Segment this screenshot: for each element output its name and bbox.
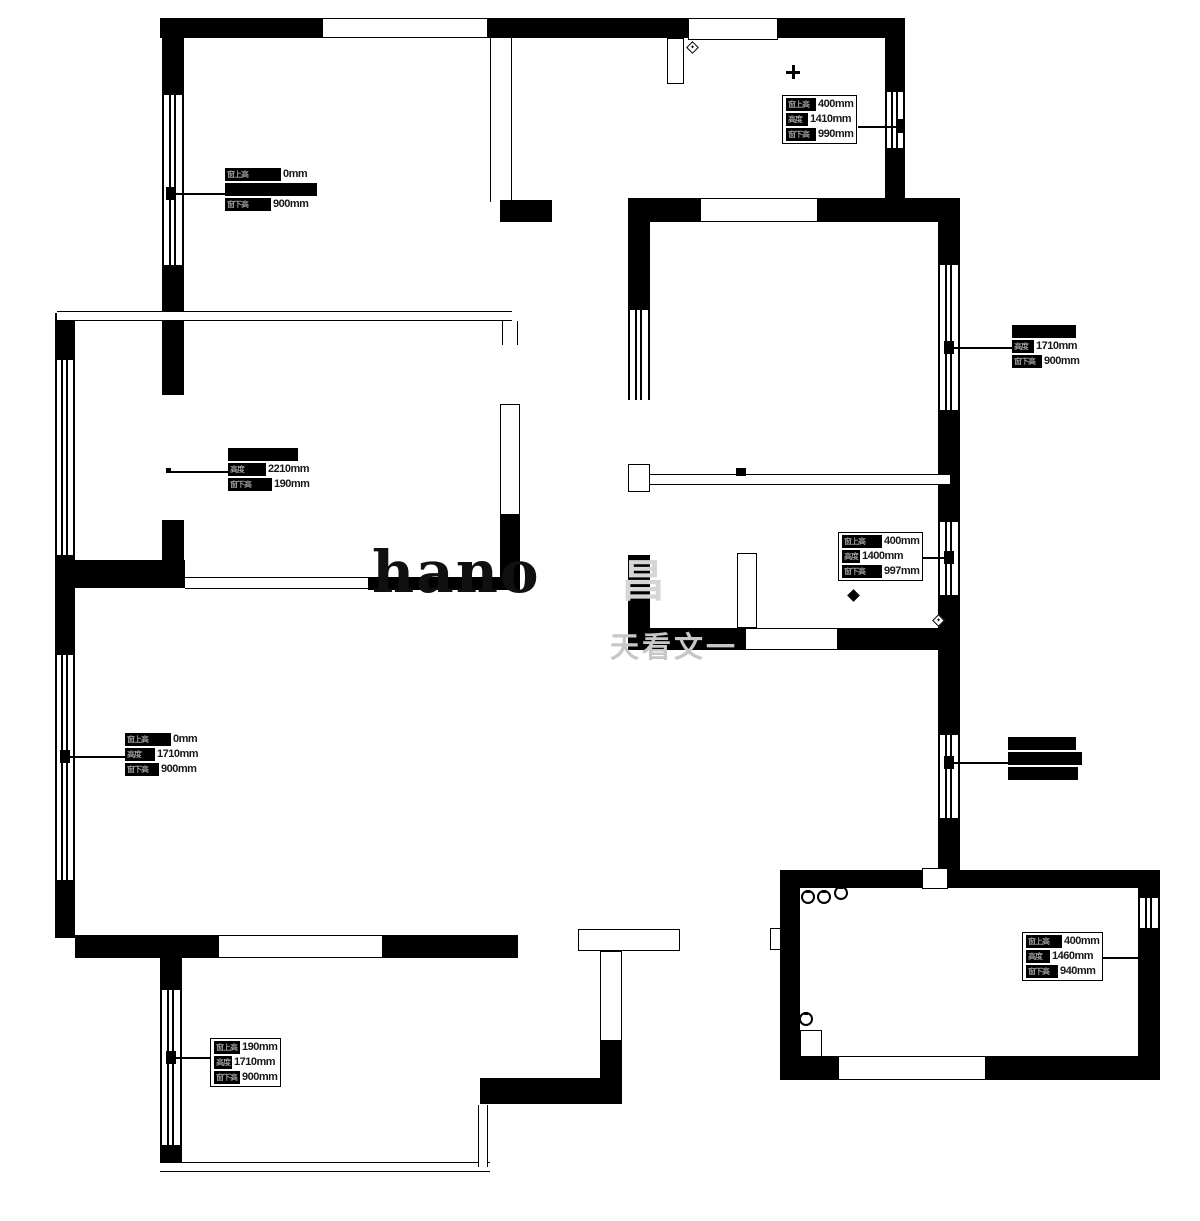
leader-line <box>176 1057 212 1059</box>
dim-row: 窗下高940mm <box>1026 965 1099 978</box>
dim-row: 高度2210mm <box>228 463 309 476</box>
wall-segment <box>778 18 905 38</box>
thin-wall <box>185 577 368 589</box>
dim-label-bottom-right[interactable]: 窗上高400mm 高度1460mm 窗下高940mm <box>1022 932 1103 981</box>
wall-segment <box>885 38 905 92</box>
window-striped <box>628 310 650 400</box>
dim-label-top-left[interactable]: 窗上高0mm 窗下高900mm <box>225 168 317 211</box>
dim-row: 窗上高400mm <box>842 535 919 548</box>
dim-row: 高度1410mm <box>786 113 853 126</box>
wall-unfilled <box>628 464 650 492</box>
wall-unfilled <box>600 951 622 1041</box>
window-striped <box>160 990 182 1145</box>
fixture-circle-icon <box>834 886 848 900</box>
wall-segment <box>628 198 700 222</box>
wall-unfilled <box>578 929 680 951</box>
dim-value: 0mm <box>171 733 197 746</box>
wall-segment <box>500 514 520 590</box>
dim-chip-blackout <box>1008 752 1082 765</box>
dim-value: 900mm <box>1042 355 1079 368</box>
wall-tick <box>166 187 176 200</box>
dim-value: 400mm <box>882 535 919 548</box>
dim-label-top-right[interactable]: 窗上高400mm 高度1410mm 窗下高990mm <box>782 95 857 144</box>
window-striped <box>55 360 75 555</box>
wall-segment <box>55 560 185 588</box>
wall-segment <box>780 870 800 1075</box>
dim-chip: 窗上高 <box>225 168 281 181</box>
dim-row: 窗上高400mm <box>1026 935 1099 948</box>
dim-row <box>1008 767 1082 780</box>
dim-label-mid-left[interactable]: 高度2210mm 窗下高190mm <box>228 448 309 491</box>
dim-value: 900mm <box>159 763 196 776</box>
dim-row: 窗上高0mm <box>225 168 317 181</box>
dim-value: 400mm <box>1062 935 1099 948</box>
dim-value: 400mm <box>816 98 853 111</box>
dim-row <box>228 448 309 461</box>
wall-tick <box>60 750 70 763</box>
dim-value: 0mm <box>281 168 307 181</box>
dim-value: 1710mm <box>155 748 198 761</box>
wall-segment <box>600 1040 622 1080</box>
wall-tick <box>736 468 746 476</box>
wall-segment <box>368 577 518 590</box>
wall-unfilled <box>770 928 781 950</box>
leader-line <box>176 193 226 195</box>
dim-value: 997mm <box>882 565 919 578</box>
dim-chip: 窗下高 <box>125 763 159 776</box>
wall-segment <box>938 222 960 265</box>
window-striped <box>162 95 184 265</box>
thin-wall <box>478 1105 488 1167</box>
wall-segment <box>628 222 650 310</box>
dim-row: 高度1710mm <box>214 1056 277 1069</box>
wall-tick <box>944 551 954 564</box>
leader-line <box>171 471 228 473</box>
dim-chip: 窗上高 <box>842 535 882 548</box>
dim-row: 高度1710mm <box>1012 340 1079 353</box>
dim-chip: 窗下高 <box>842 565 882 578</box>
window-opening <box>688 18 778 40</box>
dim-chip: 高度 <box>214 1056 232 1069</box>
dim-row: 窗下高900mm <box>125 763 198 776</box>
thin-wall <box>650 474 950 485</box>
dim-chip-blackout <box>228 448 298 461</box>
dim-value: 1710mm <box>232 1056 275 1069</box>
window-opening <box>922 868 948 889</box>
dim-row: 高度1460mm <box>1026 950 1099 963</box>
leader-dot <box>166 468 171 473</box>
fixture-circle-icon <box>817 890 831 904</box>
wall-segment <box>885 148 905 200</box>
wall-segment <box>628 628 745 650</box>
dim-row <box>1012 325 1079 338</box>
thin-wall <box>57 311 512 321</box>
dim-value: 1710mm <box>1034 340 1077 353</box>
dim-chip: 高度 <box>786 113 808 126</box>
dim-value: 940mm <box>1058 965 1095 978</box>
wall-unfilled <box>667 38 684 84</box>
dim-chip-blackout <box>1012 325 1076 338</box>
dim-chip-blackout <box>1008 737 1076 750</box>
dim-chip: 窗下高 <box>786 128 816 141</box>
dim-row: 高度1710mm <box>125 748 198 761</box>
dim-row: 窗下高190mm <box>228 478 309 491</box>
window-opening <box>745 628 838 650</box>
wall-segment <box>500 200 552 222</box>
fixture-circle-icon <box>799 1012 813 1026</box>
dim-value: 990mm <box>816 128 853 141</box>
dim-chip: 窗上高 <box>214 1041 240 1054</box>
plus-marker-icon <box>786 65 800 79</box>
dim-chip: 窗下高 <box>225 198 271 211</box>
dim-row: 窗下高900mm <box>1012 355 1079 368</box>
wall-segment <box>160 18 322 38</box>
leader-line <box>952 347 1012 349</box>
wall-unfilled <box>500 404 520 516</box>
wall-segment <box>160 958 182 990</box>
dim-chip: 窗下高 <box>1026 965 1058 978</box>
dim-chip: 窗下高 <box>228 478 272 491</box>
leader-line <box>64 756 125 758</box>
thin-wall <box>502 321 518 345</box>
dim-row <box>225 183 317 196</box>
dim-chip: 窗下高 <box>214 1071 240 1084</box>
leader-line <box>952 762 1008 764</box>
window-striped <box>1138 898 1160 928</box>
dim-row: 窗上高190mm <box>214 1041 277 1054</box>
leader-line <box>858 126 905 128</box>
wall-tick <box>944 756 954 769</box>
dim-chip: 高度 <box>842 550 860 563</box>
dim-label-bottom-left[interactable]: 窗上高190mm 高度1710mm 窗下高900mm <box>210 1038 281 1087</box>
dim-label-mid-right[interactable]: 窗上高400mm 高度1400mm 窗下高997mm <box>838 532 923 581</box>
star-marker-icon <box>847 589 860 602</box>
window-opening <box>700 198 818 222</box>
floor-plan-canvas: 窗上高400mm 高度1410mm 窗下高990mm 窗上高0mm 窗下高900… <box>0 0 1200 1221</box>
dim-label-right-upper[interactable]: 高度1710mm 窗下高900mm <box>1012 325 1079 368</box>
dim-row: 窗下高900mm <box>214 1071 277 1084</box>
dim-value: 900mm <box>271 198 308 211</box>
wall-segment <box>938 650 960 735</box>
dim-row: 窗下高990mm <box>786 128 853 141</box>
wall-segment <box>480 1078 622 1104</box>
thin-wall <box>160 1162 490 1172</box>
wall-segment <box>838 628 960 650</box>
wall-segment <box>948 870 1160 888</box>
wall-unfilled <box>737 553 757 628</box>
wall-segment <box>383 935 518 958</box>
dim-chip: 高度 <box>1026 950 1050 963</box>
fixture-circle-icon <box>801 890 815 904</box>
wall-segment <box>75 935 218 958</box>
dim-row: 窗上高0mm <box>125 733 198 746</box>
diamond-marker-icon <box>686 41 699 54</box>
window-opening <box>322 18 488 38</box>
dim-value: 900mm <box>240 1071 277 1084</box>
window-opening <box>838 1056 986 1080</box>
wall-unfilled <box>800 1030 822 1057</box>
dim-chip-blackout <box>1008 767 1078 780</box>
dim-label-right-mid[interactable] <box>1008 737 1082 780</box>
wall-segment <box>780 1056 838 1080</box>
wall-tick <box>944 341 954 354</box>
dim-row <box>1008 737 1082 750</box>
dim-label-left-mid[interactable]: 窗上高0mm 高度1710mm 窗下高900mm <box>125 733 198 776</box>
window-striped <box>938 735 960 818</box>
wall-segment <box>55 880 75 938</box>
wall-segment <box>488 18 688 38</box>
dim-value: 190mm <box>240 1041 277 1054</box>
dim-chip: 窗下高 <box>1012 355 1042 368</box>
dim-row: 窗上高400mm <box>786 98 853 111</box>
window-opening <box>218 935 383 958</box>
wall-segment <box>938 410 960 522</box>
dim-chip: 窗上高 <box>1026 935 1062 948</box>
dim-chip: 窗上高 <box>125 733 171 746</box>
dim-chip-blackout <box>225 183 317 196</box>
window-striped <box>55 655 75 880</box>
dim-row: 窗下高900mm <box>225 198 317 211</box>
wall-segment <box>1138 870 1160 898</box>
dim-value: 1460mm <box>1050 950 1093 963</box>
wall-segment <box>986 1056 1160 1080</box>
dim-chip: 高度 <box>1012 340 1034 353</box>
window-striped <box>938 265 960 410</box>
dim-chip: 窗上高 <box>786 98 816 111</box>
dim-row <box>1008 752 1082 765</box>
wall-tick <box>166 1051 176 1064</box>
dim-row: 窗下高997mm <box>842 565 919 578</box>
wall-segment <box>162 38 184 95</box>
dim-row: 高度1400mm <box>842 550 919 563</box>
thin-wall <box>490 38 512 202</box>
wall-segment <box>938 818 960 870</box>
wall-segment <box>818 198 960 222</box>
dim-chip: 高度 <box>228 463 266 476</box>
wall-segment <box>162 265 184 395</box>
dim-value: 2210mm <box>266 463 309 476</box>
dim-value: 1410mm <box>808 113 851 126</box>
wall-segment <box>780 870 922 888</box>
dim-chip: 高度 <box>125 748 155 761</box>
dim-value: 190mm <box>272 478 309 491</box>
dim-value: 1400mm <box>860 550 903 563</box>
